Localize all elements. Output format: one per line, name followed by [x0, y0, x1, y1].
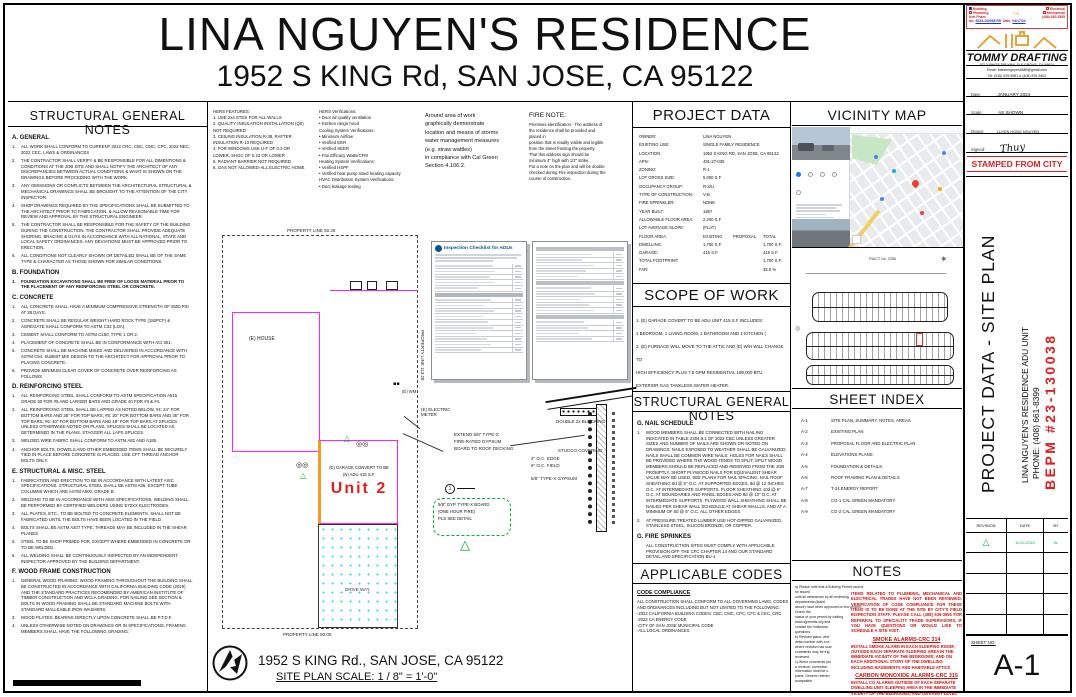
doc-row-mark — [616, 304, 622, 305]
property-line-bottom-label: PROPERTY LINE 50.00 — [283, 632, 331, 637]
trades-warning: ITEMS RELATED TO PLUMBING, MECHANICAL AN… — [851, 591, 962, 634]
doc-row-value — [512, 331, 523, 336]
note-item: 2.CONCRETE SHALL BE REGULAR WEIGHT HARD … — [12, 318, 202, 329]
note-text: UNLESS OTHERWISE NOTED ON DRAWINGS OR IN… — [21, 623, 193, 634]
project-data-title: PROJECT DATA — [633, 104, 790, 128]
structural-notes-left-title: STRUCTURAL GENERAL NOTES — [10, 106, 205, 127]
poi-dot-red — [920, 211, 924, 215]
note-text: PLACEMENT OF CONCRETE SHALL BE IN CONFOR… — [21, 340, 193, 346]
doc-row-value — [512, 314, 523, 319]
note-text: CEMENT SHALL CONFORM TO ASTM C150, TYPE … — [21, 332, 193, 338]
note-text: AT PRESSURE TREATED LUMBER USE HOT-DIPPE… — [646, 518, 787, 529]
nearby-icon — [820, 172, 825, 177]
doc-row-text — [435, 338, 487, 340]
gypsum-coil-hatch — [588, 412, 592, 524]
doc-row-mark — [616, 293, 622, 294]
doc-row-text — [536, 299, 581, 301]
revision-by: HL — [1044, 533, 1068, 552]
note-item: 2.AT PRESSURE TREATED LUMBER USE HOT-DIP… — [637, 518, 787, 529]
stucco-note: STUCCO COVERING — [558, 448, 602, 453]
stamped-box: STAMPED FROM CITY — [966, 152, 1068, 176]
sheet-index-name: ROOF FRAMING PLAN & DETAILS — [831, 475, 900, 480]
water-meter-icon: ▪▪ — [393, 381, 400, 387]
note-number: 4. — [12, 623, 21, 634]
project-data-label: ZONING: — [639, 167, 703, 172]
doc-row-mark — [515, 305, 521, 306]
rev-header-date: DATE — [1007, 519, 1044, 532]
fire-note: FIRE NOTE: Premises identification - The… — [529, 112, 629, 182]
note-text: WELDED WIRE FABRIC SHALL CONFORM TO ASTM… — [21, 438, 193, 444]
project-data-row: OWNER:LINA NGUYEN — [639, 134, 787, 142]
note-item: 4.UNLESS OTHERWISE NOTED ON DRAWINGS OR … — [12, 623, 202, 634]
project-data-value: 1952 S KING RD, SAN JOSE, CA 95122 — [703, 151, 787, 156]
note-item: 1.FOUNDATION EXCAVATIONS SHALL BE FREE O… — [12, 279, 202, 290]
doc-row-text — [536, 287, 591, 289]
doc-row-value — [613, 274, 624, 279]
project-data-row: FIRE SPRINKLER:NONE — [639, 200, 787, 208]
code-compliance-subtitle: CODE COMPLIANCE — [637, 590, 789, 596]
floor-area-existing: 1,700 S.F. — [703, 242, 733, 247]
poi-dot-blue-2 — [942, 151, 946, 155]
mechanical-checkbox-icon — [1043, 11, 1046, 14]
floor-area-label: GARAGE: — [639, 250, 703, 255]
checklist-title: Inspection Checklist for ADUs — [444, 246, 513, 251]
doc-row-text — [435, 344, 491, 346]
notes-section-heading: E. STRUCTURAL & MISC. STEEL — [12, 469, 202, 475]
sheet-index-row: A-1SITE PLAN, SUMMARY, NOTES, AREAS — [801, 418, 959, 423]
note-number: 2. — [12, 318, 21, 329]
doc-section-bar — [435, 293, 523, 297]
stamp-date-value: 04/17/24 — [1012, 19, 1025, 23]
plat-compass-icon: ✶ — [940, 255, 948, 265]
doc-row-text — [536, 293, 595, 295]
scope-of-work-body: 1. (E) GARAGE COVERT TO BE ADU UNIT 415 … — [636, 314, 788, 392]
doc-row-mark — [616, 259, 622, 260]
doc-section-bar — [536, 247, 624, 251]
doc-row-mark — [616, 299, 622, 300]
project-data-label: ALLOWABLE FLOOR AREA: — [639, 217, 703, 222]
fire-note-title: FIRE NOTE: — [529, 112, 629, 119]
doc-row-mark — [515, 276, 521, 277]
project-data-value: R-3/U — [703, 184, 787, 189]
doc-table-row — [536, 308, 624, 314]
sheet-index-name: CG-2 CAL GREEN MANDATORY — [831, 509, 895, 514]
project-data-label: LOCATION: — [639, 151, 703, 156]
doc-row-value — [613, 292, 624, 297]
inspection-checklist-page2 — [532, 241, 628, 380]
note-number: 6. — [12, 368, 21, 379]
doc-row-mark — [515, 344, 521, 345]
doc-row-value — [613, 326, 624, 331]
doc-row-text — [435, 327, 493, 329]
north-arrow-icon — [211, 644, 251, 684]
note-number: 5. — [12, 539, 21, 550]
floor-area-row: TOTAL FOOTPRINT:1,700 S.F. — [639, 258, 787, 266]
revision-row — [966, 615, 1068, 635]
sheet-index-number: A-9 — [801, 509, 831, 514]
smoke-alarms-body: INSTALL SMOKE ALARM IN EACH SLEEPING ROO… — [851, 644, 962, 671]
notes-section-heading: D. REINFORCING STEEL — [12, 384, 202, 390]
page-title: LINA NGUYEN'S RESIDENCE — [10, 8, 960, 60]
doc-row-mark — [515, 333, 521, 334]
vicinity-map-title: VICINITY MAP — [792, 104, 962, 126]
street-view-photo — [792, 127, 850, 160]
poi-dot-blue — [874, 155, 878, 159]
doc-row-mark — [515, 299, 521, 300]
doc-row-mark — [616, 327, 622, 328]
project-data-row: TYPE OF CONSTRUCTION:V-B — [639, 192, 787, 200]
revision-date — [1007, 574, 1044, 593]
driveway: DRIVE WAY — [318, 524, 398, 628]
note-text: THE CONTRACTOR SHALL BE RESPONSIBLE FOR … — [21, 222, 193, 250]
cal-green-note: Around area of work graphically demonstr… — [425, 112, 525, 171]
code-item: -2022 CALIFORNIA BUILDING CODES: CBC, CM… — [637, 611, 789, 617]
revision-date — [1007, 615, 1044, 634]
sheet-index-number: A-8 — [801, 498, 831, 503]
revision-mark — [966, 574, 1007, 593]
doc-row-text — [435, 316, 483, 318]
project-data-row: EXISTING USE:SINGLE FAMILY RESIDENCE — [639, 142, 787, 150]
divider-col5 — [790, 101, 791, 691]
plat-map: TRACT No. 2358 ✶ ◎ — [792, 249, 963, 388]
sheet-index-title: SHEET INDEX — [792, 388, 962, 409]
note-item: 3.ALL PLATES, ETC., TO BE BOLTED TO CONC… — [12, 511, 202, 522]
doc-intro-bar — [435, 260, 493, 262]
lot-band-3 — [806, 365, 954, 385]
note-item: 2.WELDING TO BE IN ACCORDANCE WITH AWS S… — [12, 497, 202, 508]
note-item: 4.PLACEMENT OF CONCRETE SHALL BE IN CONF… — [12, 340, 202, 346]
note-text: ALL CONSTRUCTION SITES MUST COMPLY WITH … — [646, 543, 787, 560]
poi-dot-orange — [938, 187, 942, 191]
note-number: 3. — [12, 183, 21, 200]
gypsum-note: 5/8" TYPE-X GYPSUM — [531, 476, 577, 481]
doc-row-text — [435, 349, 481, 351]
note-number: 2. — [12, 497, 21, 508]
property-line-right — [417, 235, 418, 628]
project-data-row: YEAR BUILT:1957 — [639, 209, 787, 217]
floor-area-total: 1,700 S.F. — [763, 242, 787, 247]
note-item: 1.FABRICATION AND ERECTION TO BE IN ACCO… — [12, 478, 202, 495]
floor-area-total: 35.0 % — [763, 267, 787, 272]
stucco-hatch — [612, 412, 615, 524]
directions-icon — [796, 172, 801, 177]
inspection-checklist-page1: Inspection Checklist for ADUs — [431, 241, 527, 380]
floor-area-total: 1,700 S.F. — [763, 258, 787, 263]
note-text: FABRICATION AND ERECTION TO BE IN ACCORD… — [21, 478, 193, 495]
sheet-index-row: A-9CG-2 CAL GREEN MANDATORY — [801, 509, 959, 514]
redacted-line — [13, 680, 141, 686]
detail-marker-1: 1 — [445, 484, 455, 494]
smoke-alarms-heading: SMOKE ALARMS-CRC 314 — [851, 637, 962, 643]
revision-date: 10-01-2024 — [1007, 533, 1044, 552]
shed-2 — [367, 281, 377, 290]
title-block: LINA NGUYEN'S RESIDENCE 1952 S KING Rd, … — [10, 8, 960, 101]
note-text: ALL WORK SHALL CONFORM TO CURRENT 2022 C… — [21, 144, 193, 155]
doc-row-value — [512, 298, 523, 303]
sheet-index-number: A-2 — [801, 429, 831, 434]
project-data-value: V-B — [703, 192, 787, 197]
street-view-photo-2 — [792, 219, 850, 248]
doc-intro-bar — [435, 257, 517, 259]
doc-row-value — [512, 303, 523, 308]
electrical-checkbox-icon — [1046, 7, 1049, 10]
note-text: ANCHOR BOLTS, DOWELS AND OTHER EMBEDDED … — [21, 447, 193, 464]
sheet-index-row: A-7T-24 ENERGY REPORT — [801, 486, 959, 491]
note-item: 5.THE CONTRACTOR SHALL BE RESPONSIBLE FO… — [12, 222, 202, 250]
doc-row-mark — [515, 288, 521, 289]
project-data-row: LOCATION:1952 S KING RD, SAN JOSE, CA 95… — [639, 151, 787, 159]
sheet-index-row: A-5FOUNDATION & DETAILS — [801, 464, 959, 469]
structural-notes-right-title: STRUCTURAL GENERAL NOTES — [633, 391, 790, 412]
doc-row-value — [512, 280, 523, 285]
note-item: 5.CONCRETE SHALL BE MACHINE MIXED AND DE… — [12, 348, 202, 365]
note-item: 6.ALL CONDITIONS NOT CLEARLY SHOWN OR DE… — [12, 253, 202, 264]
fire-cloud-note: 5/8" GYP. TYPE-X BOARD (ONE HOUR FIRE) P… — [433, 498, 511, 536]
note-text: WOOD MEMBERS SHALL BE CONNECTED WITH NAI… — [646, 430, 787, 515]
revision-by — [1044, 553, 1068, 572]
stamped-from-city: STAMPED FROM CITY — [967, 156, 1067, 172]
sheet-index-row: A-2EXISTING PLAN — [801, 429, 959, 434]
project-data-label: OCCUPANCY GROUP: — [639, 184, 703, 189]
site-address: 1952 S KING Rd., SAN JOSE, CA 95122 — [258, 653, 503, 668]
title-divider — [8, 101, 963, 102]
site-plan-scale: SITE PLAN SCALE: 1 / 8" = 1'-0" — [276, 671, 437, 683]
doc-row-value — [613, 269, 624, 274]
shed-1 — [350, 281, 362, 290]
doc-row-mark — [616, 338, 622, 339]
map-canvas — [850, 127, 963, 248]
note-item: 3.WOOD PLATES: BEARING DIRECTLY UPON CON… — [12, 615, 202, 621]
revision-date — [1007, 594, 1044, 613]
subject-lot-highlight — [916, 333, 923, 346]
checklist-logo-icon — [435, 245, 442, 252]
doc-row-text — [536, 333, 579, 335]
sheet-index-number: A-6 — [801, 475, 831, 480]
doc-row-text — [435, 310, 494, 312]
project-data-label: LOT GROSS SIZE: — [639, 175, 703, 180]
property-line-bottom — [222, 628, 418, 629]
doc-row-text — [536, 259, 582, 261]
rear-fence-line — [330, 290, 418, 291]
doc-row-mark — [616, 288, 622, 289]
applicable-codes-title: APPLICABLE CODES — [633, 563, 790, 584]
revision-date — [1007, 553, 1044, 572]
code-item: -ALL LOCAL ORDINANCES — [637, 628, 789, 634]
doc-row-text — [536, 338, 592, 340]
doc-row-mark — [616, 270, 622, 271]
note-text: THE CONTRACTOR SHALL VERIFY & BE RESPONS… — [21, 158, 193, 181]
shed-3 — [386, 281, 398, 290]
note-text: ALL CONDITIONS NOT CLEARLY SHOWN OR DETA… — [21, 253, 193, 264]
sheet-index-row: A-6ROOF FRAMING PLAN & DETAILS — [801, 475, 959, 480]
existing-house-outline — [232, 312, 320, 452]
lot-band-2 — [806, 332, 954, 360]
project-data-label: LOT AVERAGE SLOPE: — [639, 225, 703, 230]
field-date: Date: JANUARY 2024 — [966, 78, 1068, 96]
note-number: 4. — [12, 203, 21, 220]
map-place-card — [796, 164, 846, 220]
stamp-no-label: No. — [969, 19, 974, 23]
city-stamp: Building Electrical Plumbing ✓△| Mechani… — [966, 5, 1068, 29]
divider-titleblock — [963, 5, 965, 691]
note-text: ANY OMISSIONS OR CONFLICTS BETWEEN THE A… — [21, 183, 193, 200]
stamp-phone: (408) 535-3555 — [1042, 15, 1065, 19]
note-number: 1. — [12, 144, 21, 155]
sheet-index-number: A-4 — [801, 452, 831, 457]
doc-row-value — [512, 326, 523, 331]
floor-area-row: GARAGE:415 S.F.415 S.F. — [639, 250, 787, 258]
house-label: (E) HOUSE — [249, 336, 275, 342]
property-line-top-label: PROPERTY LINE 50.28 — [287, 228, 335, 233]
note-number: 3. — [12, 615, 21, 621]
sheet-index-number: A-3 — [801, 441, 831, 446]
vicinity-map — [792, 127, 963, 248]
doc-row-value — [512, 348, 523, 353]
pegman-box — [852, 235, 861, 244]
detail-marker-line — [457, 488, 475, 489]
doc-row-text — [536, 254, 592, 256]
notes-section-heading: G. FIRE SPRINKES — [637, 534, 787, 540]
property-line-top — [222, 235, 418, 236]
doc-row-mark — [616, 276, 622, 277]
revision-triangle-icon-2: △ — [344, 434, 350, 443]
doc-section-bar — [536, 315, 624, 319]
sheet-index-number: A-7 — [801, 486, 831, 491]
notes-title: NOTES — [792, 560, 962, 581]
stamp-no-value: 2023-130038 RS — [975, 19, 1001, 23]
floor-area-label: DWELLING: — [639, 242, 703, 247]
doc-table-row — [435, 286, 523, 292]
notes-section-heading: C. CONCRETE — [12, 295, 202, 301]
notes-section-heading: B. FOUNDATION — [12, 270, 202, 276]
lot-band-1 — [812, 292, 948, 322]
floor-area-row: DWELLING:1,700 S.F.1,700 S.F. — [639, 242, 787, 250]
project-data-value: 5,000 S.F — [703, 175, 787, 180]
note-text: PROVIDE MINIMUM CLEAR COVER OF CONCRETE … — [21, 368, 193, 379]
phone-vertical: PHONE: (408) 661-8399 — [1031, 274, 1041, 479]
note-number: 6. — [12, 253, 21, 264]
doc-table-row — [435, 348, 523, 354]
doc-row-mark — [616, 265, 622, 266]
doc-row-text — [435, 299, 491, 301]
revision-row — [966, 553, 1068, 573]
doc-row-text — [536, 270, 586, 272]
note-number: 1. — [12, 279, 21, 290]
doc-row-mark — [515, 349, 521, 350]
oc-note: 4" O.C. EDGE 6" O.C. FIELD — [531, 456, 560, 470]
sheet-index-row: A-4ELEVATIONS PLANS — [801, 452, 959, 457]
note-text: FOUNDATION EXCAVATIONS SHALL BE FREE OF … — [21, 279, 193, 290]
note-text: ALL WELDING SHALL BE CONTINUOUSLY INSPEC… — [21, 553, 193, 564]
project-data-value: LINA NGUYEN — [703, 134, 787, 139]
notes-red-overlay: ITEMS RELATED TO PLUMBING, MECHANICAL AN… — [851, 591, 962, 697]
note-number: 4. — [12, 340, 21, 346]
note-number: 1. — [12, 478, 21, 495]
floor-area-existing: 415 S.F. — [703, 250, 733, 255]
note-number: 5. — [12, 348, 21, 365]
note-item: 4.BOLTS SHALL BE ASTM A307 TYPE. THREADS… — [12, 525, 202, 536]
note-text: ALL REINFORCING STEEL SHALL CONFORM TO A… — [21, 393, 193, 404]
project-data-row: ZONING:R-1 — [639, 167, 787, 175]
floor-area-total: 415 S.F. — [763, 250, 787, 255]
property-line-left — [222, 235, 223, 628]
note-text: CONCRETE SHALL BE MACHINE MIXED AND DELI… — [21, 348, 193, 365]
building-checkbox-icon — [969, 7, 972, 10]
floor-area-label: FLOOR AREA: — [639, 234, 703, 239]
project-data-table: OWNER:LINA NGUYENEXISTING USE:SINGLE FAM… — [639, 134, 787, 275]
note-item: 3.ANY OMISSIONS OR CONFLICTS BETWEEN THE… — [12, 183, 202, 200]
revision-table: REVISION DATE BY △10-01-2024HL — [966, 518, 1068, 635]
note-number: 3. — [12, 438, 21, 444]
tommy-drafting-logo-icon — [976, 30, 1058, 50]
note-item: 6.PROVIDE MINIMUM CLEAR COVER OF CONCRET… — [12, 368, 202, 379]
doc-row-text — [435, 276, 490, 278]
notes-title-underline — [8, 126, 207, 127]
note-item: 1.WOOD MEMBERS SHALL BE CONNECTED WITH N… — [637, 430, 787, 515]
revision-row — [966, 574, 1068, 594]
doc-row-text — [536, 276, 578, 278]
doc-row-value — [613, 297, 624, 302]
doc-row-mark — [515, 316, 521, 317]
driveway-label: DRIVE WAY — [345, 587, 370, 592]
hers-verifications: HERS Verifications: • Door air quality v… — [319, 109, 421, 190]
project-data-value: (FLAT) — [703, 225, 787, 230]
field-scale: Scale: AS SHOWN — [966, 96, 1068, 114]
extend-gypsum-note: EXTEND 5/8" TYPE-X FIRE-RATED GYPSUM BOA… — [454, 432, 513, 452]
property-line-right-label: PROPERTY LINE 113.28 — [420, 330, 425, 381]
plumbing-checkbox-icon — [969, 11, 972, 14]
structural-notes-right: G. NAIL SCHEDULE1.WOOD MEMBERS SHALL BE … — [637, 416, 787, 563]
plat-circle-marker: ◎ — [795, 325, 800, 332]
doc-row-mark — [515, 271, 521, 272]
doc-row-text — [435, 287, 478, 289]
note-number: 1. — [12, 393, 21, 404]
revision-row — [966, 594, 1068, 614]
doc-row-mark — [515, 322, 521, 323]
revision-mark: △ — [966, 533, 1007, 552]
note-number: 1. — [637, 430, 646, 515]
note-number: 6. — [12, 553, 21, 564]
doc-table-row — [536, 337, 624, 343]
revision-triangle-icon: △ — [300, 471, 306, 480]
co-alarms-heading: CARBON MONOXIDE ALARMS-CRC 315 — [851, 673, 962, 679]
doc-row-value — [512, 275, 523, 280]
doc-row-value — [512, 309, 523, 314]
floor-area-label: TOTAL FOOTPRINT: — [639, 258, 703, 263]
doc-intro-bar — [435, 254, 521, 256]
note-text: WELDING TO BE IN ACCORDANCE WITH AWS SPE… — [21, 497, 193, 508]
doc-row-mark — [616, 333, 622, 334]
note-text: STEEL TO BE SHOP PRIMED FOR, EXCEPT WHER… — [21, 539, 193, 550]
sheet-index-name: FOUNDATION & DETAILS — [831, 464, 882, 469]
note-text: BOLTS SHALL BE ASTM A307 TYPE. THREADS M… — [21, 525, 193, 536]
doc-row-mark — [515, 310, 521, 311]
sheet-index-name: EXISTING PLAN — [831, 429, 863, 434]
sheet-index-name: SITE PLAN, SUMMARY, NOTES, AREAS — [831, 418, 911, 423]
note-number: 5. — [12, 222, 21, 250]
note-number: 1. — [12, 578, 21, 612]
permit-number-vertical: BEPM #23-130038 — [1042, 262, 1058, 490]
note-number: 2. — [12, 407, 21, 435]
note-item: 1.GENERAL WOOD FRAMING: WOOD FRAMING THR… — [12, 578, 202, 612]
sheet-index-name: PROPOSAL FLOOR AND ELECTRIC PLAN — [831, 441, 915, 446]
note-item: 6.ALL WELDING SHALL BE CONTINUOUSLY INSP… — [12, 553, 202, 564]
note-number — [637, 543, 646, 560]
sheet-number: A-1 — [966, 649, 1068, 683]
applicable-codes: CODE COMPLIANCE ALL CONSTRUCTION SHALL C… — [637, 590, 789, 634]
doc-row-text — [435, 271, 495, 273]
gas-meter-icon: ◎◎ — [296, 461, 308, 469]
